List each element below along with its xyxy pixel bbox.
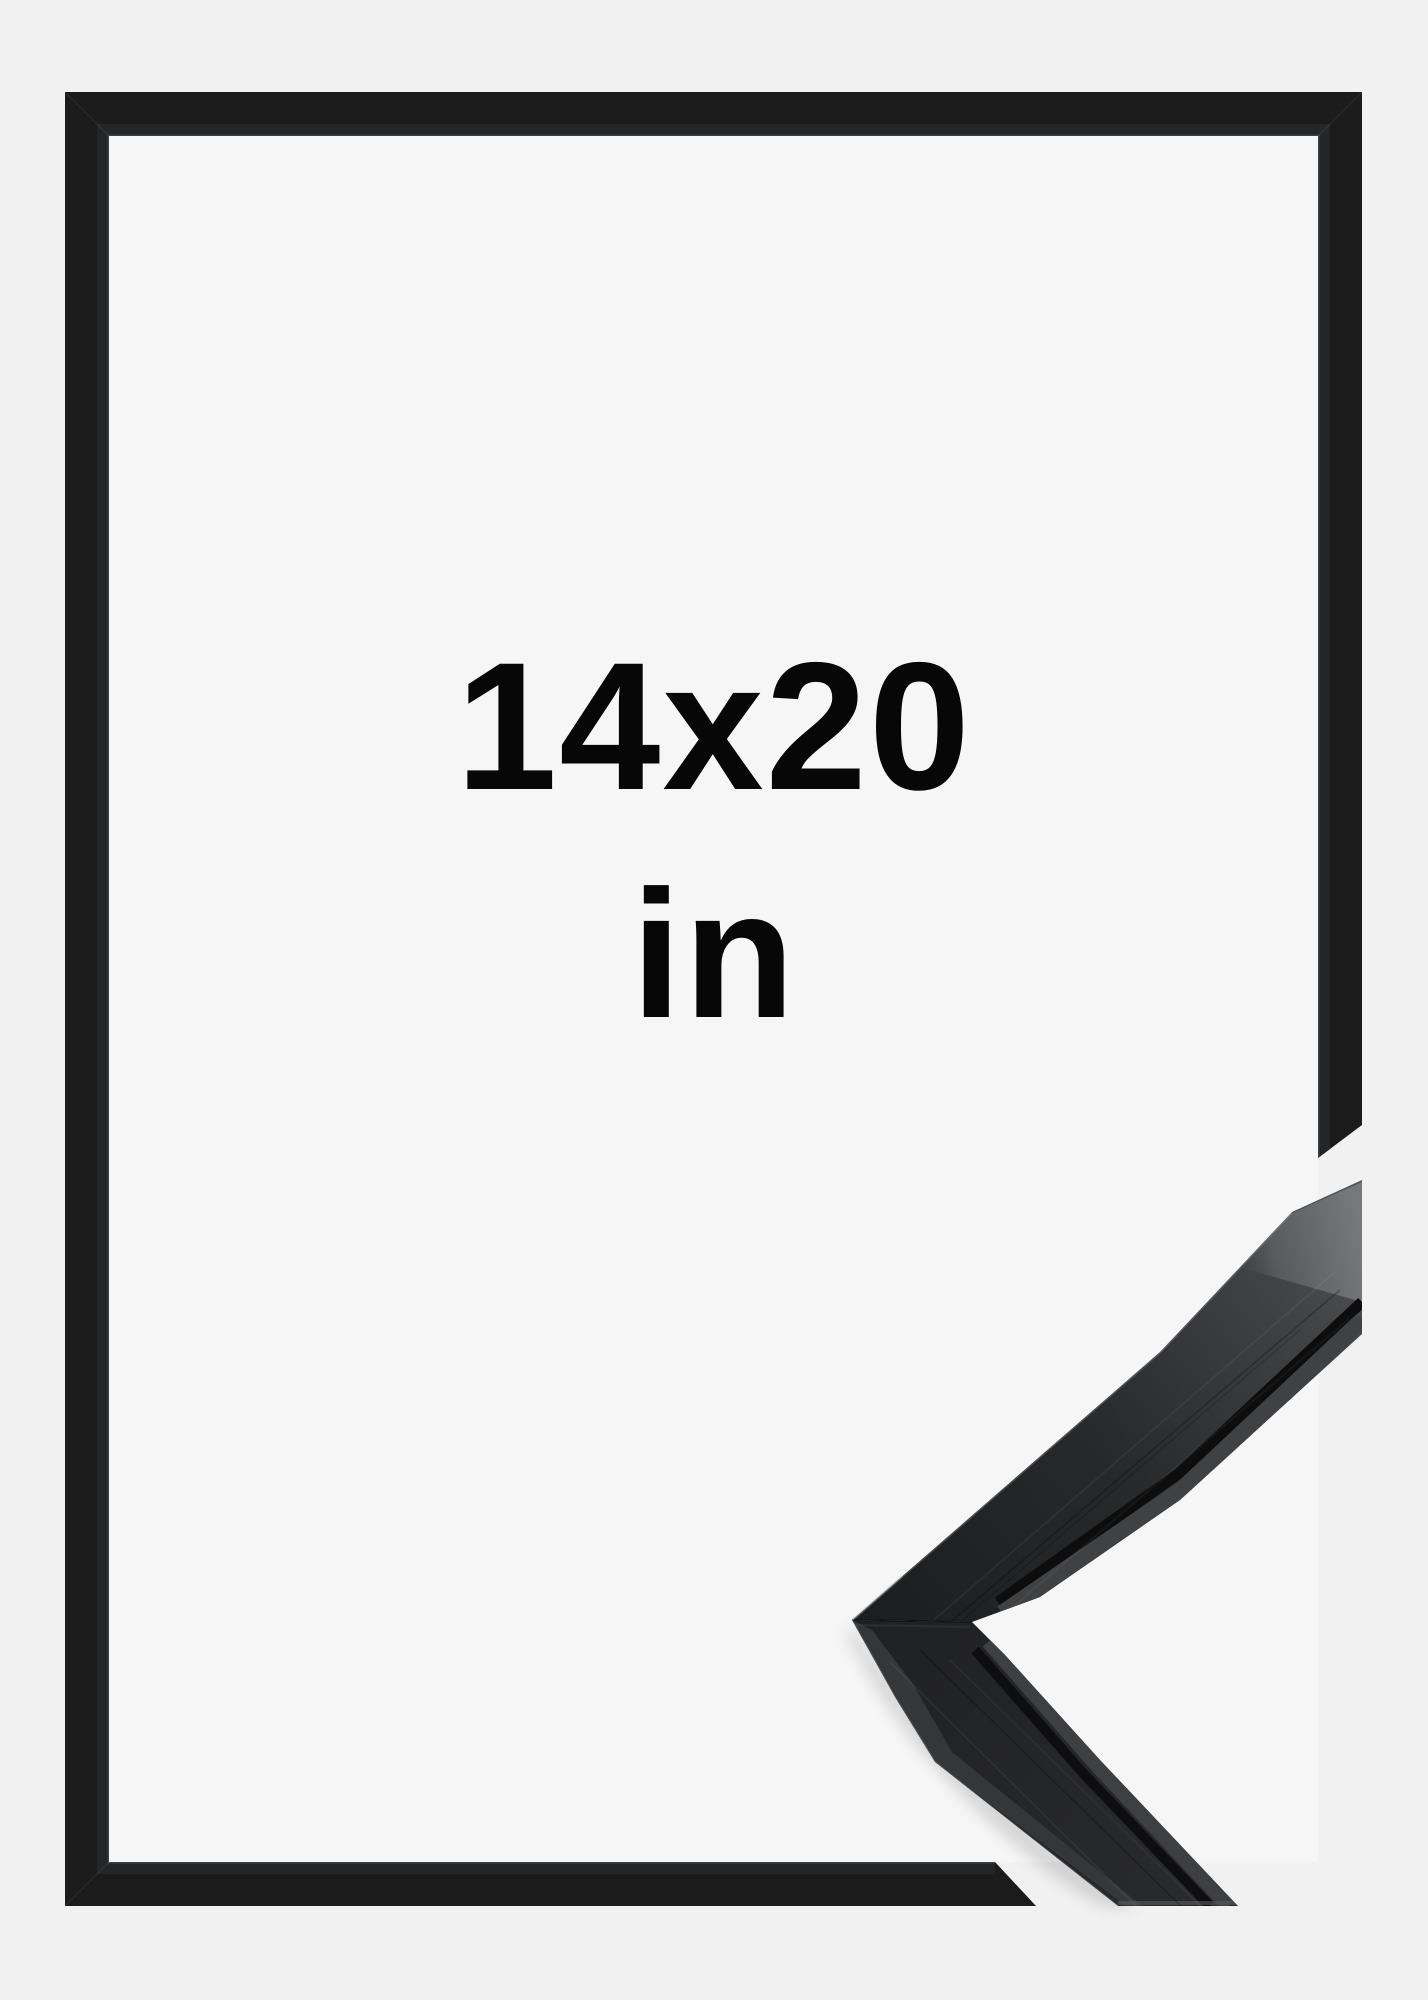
size-label: 14x20 (456, 624, 972, 828)
frame-mockup-graphic: 14x20 in (0, 0, 1428, 2000)
unit-label: in (631, 852, 797, 1056)
product-image-canvas: 14x20 in (0, 0, 1428, 2000)
